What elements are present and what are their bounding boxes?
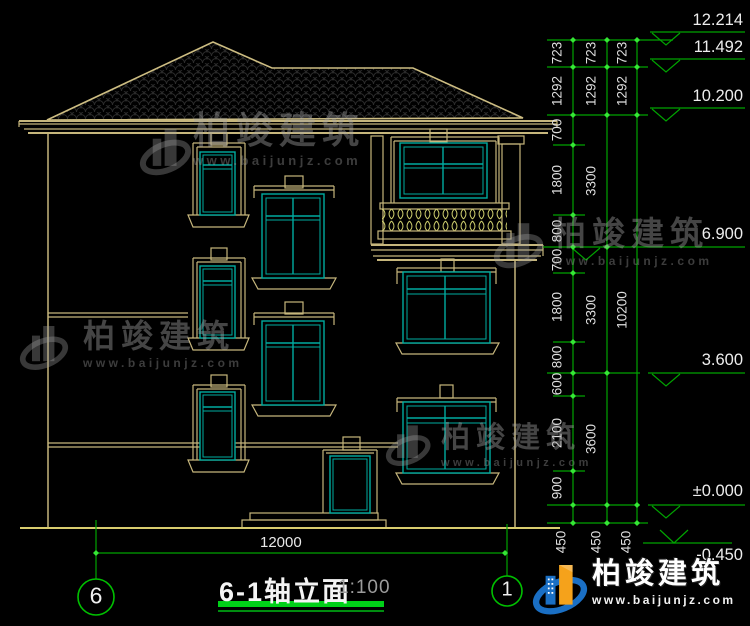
elevation-drawing xyxy=(0,0,750,626)
hip-roof xyxy=(47,42,523,120)
stair-window-1-glass xyxy=(200,152,235,215)
dim-label: 10200 xyxy=(615,291,630,329)
dim-label: 1292 xyxy=(615,76,630,106)
level-label-top: 12.214 xyxy=(648,11,743,30)
level-label-floor3: 6.900 xyxy=(648,225,743,244)
mid-window-1-glass xyxy=(262,194,324,278)
dim-label: 800 xyxy=(550,220,565,243)
dim-label: 450 xyxy=(554,531,569,554)
dim-label: 700 xyxy=(550,249,565,272)
balcony-pier xyxy=(371,136,383,244)
dim-label: 1292 xyxy=(584,76,599,106)
stair-window-3-glass xyxy=(200,392,235,460)
right-window-2-glass xyxy=(403,272,490,343)
dim-label: 1292 xyxy=(550,76,565,106)
dim-label: 900 xyxy=(550,477,565,500)
eave-cornice xyxy=(19,121,557,133)
brand-logo-icon xyxy=(532,565,589,618)
ground-dimension-label: 12000 xyxy=(260,534,302,551)
balcony-window xyxy=(400,143,487,198)
level-label-eave: 10.200 xyxy=(648,87,743,106)
level-label-ridge: 11.492 xyxy=(648,38,743,57)
dim-label: 723 xyxy=(615,42,630,65)
dim-label: 3300 xyxy=(584,295,599,325)
entry-door xyxy=(330,456,370,513)
stair-window-2-glass xyxy=(200,266,235,338)
dim-label: 450 xyxy=(619,531,634,554)
dim-label: 1800 xyxy=(550,292,565,322)
level-label-grade: -0.450 xyxy=(648,546,743,565)
dim-label: 723 xyxy=(550,42,565,65)
axis-bubble-6: 6 xyxy=(90,582,103,609)
dim-label: 1800 xyxy=(550,165,565,195)
axis-bubble-1: 1 xyxy=(501,579,512,602)
dim-label: 2100 xyxy=(550,418,565,448)
cad-canvas: 12.214 11.492 10.200 6.900 3.600 ±0.000 … xyxy=(0,0,750,626)
dim-label: 3600 xyxy=(584,424,599,454)
level-label-zero: ±0.000 xyxy=(648,482,743,501)
drawing-title: 6-1轴立面 xyxy=(219,570,351,609)
dim-label: 3300 xyxy=(584,166,599,196)
dim-label: 800 xyxy=(550,346,565,369)
dim-label: 723 xyxy=(584,42,599,65)
balcony-balustrade xyxy=(378,203,511,239)
entry-steps xyxy=(242,513,386,528)
dim-label: 600 xyxy=(550,373,565,396)
level-label-floor2: 3.600 xyxy=(648,351,743,370)
balcony-slab xyxy=(371,245,543,260)
dim-label: 700 xyxy=(550,119,565,142)
mid-window-2-glass xyxy=(262,321,324,405)
drawing-scale: 1:100 xyxy=(338,577,391,599)
dim-label: 450 xyxy=(589,531,604,554)
